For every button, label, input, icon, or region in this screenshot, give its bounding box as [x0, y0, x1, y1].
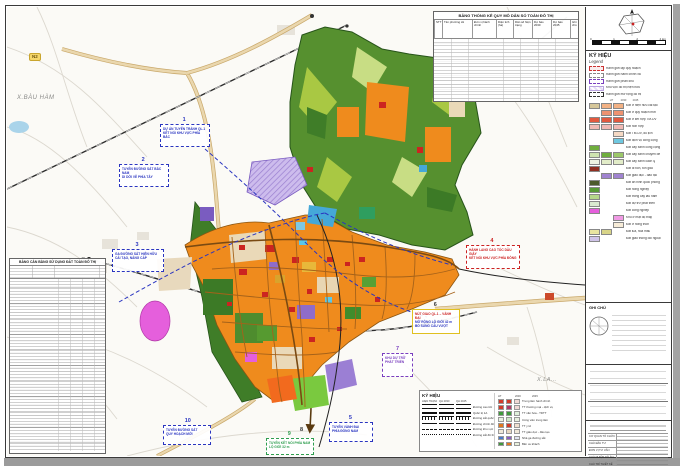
legend-label: Đất ở hiện hữu cải tạo: [626, 104, 658, 107]
line-sample: [456, 412, 471, 414]
landuse-swatch: [613, 222, 624, 228]
legend-swatches: [589, 103, 624, 109]
title-block-row: CƠ QUAN TỔ CHỨC LẬP QH: [588, 433, 668, 440]
landuse-swatch: [589, 103, 600, 109]
facility-symbol: [514, 399, 520, 404]
legend-swatches: [589, 152, 624, 158]
landuse-swatch: [613, 236, 624, 242]
callout-text: BỔ SUNG CẦU VƯỢT: [415, 324, 457, 328]
legend-boundary-row: Ranh giới mở rộng đô thị: [589, 92, 668, 97]
line-symbol-row: Đường khu vực: [422, 427, 494, 431]
symbol-key-line-headers: HIỆN TRẠNGQH 2030QH 2045: [422, 400, 494, 403]
landuse-swatch: [601, 208, 612, 214]
lake: [9, 121, 29, 133]
legend-label: Đất cây xanh chuyên đề: [626, 153, 660, 156]
landuse-swatch: [601, 166, 612, 172]
landuse-swatch: [589, 159, 600, 165]
line-symbol-row: Đường chính đô thị: [422, 422, 494, 426]
line-sample: [422, 434, 437, 435]
legend-swatches: [589, 124, 624, 130]
title-block-row: CHỦ TRÌ THIẾT KẾ: [588, 461, 668, 466]
notes-text-lines: [612, 313, 666, 353]
line-sample: [439, 404, 454, 409]
callout-number: 6: [434, 302, 437, 309]
line-column-header: QH 2045: [456, 400, 471, 403]
line-symbol-label: Đường cao tốc: [473, 405, 494, 409]
legend-label: Đất công nghiệp: [626, 209, 649, 212]
divider: [588, 401, 668, 402]
facility-symbol: [506, 417, 512, 422]
landuse-swatch: [613, 138, 624, 144]
legend-label: Ranh giới phân khu: [606, 80, 634, 83]
facility-symbol: [514, 411, 520, 416]
facility-symbol-row: TT y tế: [498, 423, 579, 428]
line-sample: [422, 429, 437, 430]
landuse-swatch: [613, 166, 624, 172]
callout-number: 7: [396, 346, 399, 353]
legend-panel: KÝ HIỆU Legend Ranh giới lập quy hoạchRa…: [586, 51, 671, 303]
landuse-swatch: [601, 222, 612, 228]
line-sample: [439, 434, 454, 435]
legend-label: Đất dịch vụ công cộng: [626, 139, 658, 142]
commune-label-se: X.LA…: [537, 377, 557, 383]
line-symbol-row: Quốc lộ 1A: [422, 411, 494, 415]
sheet-sidebar: 0124 km KÝ HIỆU Legend Ranh giới lập quy…: [585, 7, 671, 456]
facility-symbol-row: Nhà ga đường sắt: [498, 436, 579, 441]
stats-column-header: Dự báo 2030: [532, 20, 551, 39]
legend-swatches: [589, 194, 624, 200]
landuse-swatch: [589, 194, 600, 200]
scale-bar: [592, 40, 666, 45]
landuse-swatch: [589, 145, 600, 151]
legend-boundary-row: Ranh giới lập quy hoạch: [589, 66, 668, 71]
facility-symbol: [506, 442, 512, 447]
drawing-sheet: X.BÀU HÀM N2 Ga X.LA… 1DỰ ÁN TUYẾN TRÁNH…: [5, 5, 672, 458]
line-sample: [422, 412, 437, 414]
landuse-swatch: [589, 110, 600, 116]
legend-label: Đất ở kết hợp TM-DV: [626, 118, 657, 121]
legend-swatches: [589, 187, 624, 193]
line-symbol-row: Đường sắt đô thị: [422, 433, 494, 437]
landuse-swatch: [589, 138, 600, 144]
road-symbol-key: KÝ HIỆU HIỆN TRẠNGQH 2030QH 2045 Đường c…: [419, 390, 582, 452]
title-block-label: CƠ QUAN TỔ CHỨC LẬP QH: [588, 434, 617, 440]
boundary-swatch: [589, 86, 604, 91]
landuse-swatch: [589, 131, 600, 137]
facility-symbol-label: Bến xe khách: [522, 442, 579, 446]
legend-item-row: Đất công nghiệp: [589, 208, 668, 214]
landuse-swatch: [601, 117, 612, 123]
legend-label: Đất cây xanh công cộng: [626, 146, 660, 149]
landuse-swatch: [589, 222, 600, 228]
landuse-swatch: [601, 138, 612, 144]
facility-symbol: [498, 442, 504, 447]
legend-swatches: [589, 222, 624, 228]
legend-column-headers: HT20302045: [606, 99, 668, 102]
legend-boundary-row: Ranh giới hành chính xã: [589, 73, 668, 78]
legend-swatches: [589, 117, 624, 123]
line-sample: [439, 416, 454, 420]
landuse-swatch: [613, 173, 624, 179]
legend-swatches: [589, 229, 624, 235]
line-symbol-label: Đường chính đô thị: [473, 422, 494, 426]
line-sample: [456, 416, 471, 420]
title-block-value: [617, 448, 668, 454]
legend-item-row: Đất giao thông đối ngoại: [589, 236, 668, 242]
landuse-swatch: [601, 145, 612, 151]
approval-text-lines: [590, 368, 666, 418]
facility-symbol-label: TT y tế: [522, 424, 579, 428]
legend-swatches: [589, 159, 624, 165]
landuse-swatch: [601, 110, 612, 116]
legend-swatches: [589, 110, 624, 116]
legend-label: Đất giáo dục - đào tạo: [626, 174, 657, 177]
landuse-swatch: [613, 110, 624, 116]
landuse-swatch: [589, 201, 600, 207]
landuse-swatch: [613, 117, 624, 123]
location-scale-box: 0124 km: [586, 7, 671, 51]
callout-text: KẾT NỐI KHU VỰC PHÍA ĐÔNG: [469, 256, 517, 260]
legend-item-row: Đất cây xanh cách ly: [589, 159, 668, 165]
symbol-column-header: 2045: [532, 395, 547, 398]
legend-item-row: Đất ở quy hoạch mới: [589, 110, 668, 116]
callout-box: 2TUYẾN ĐƯỜNG SẮT BẮC NAMDI DỜI VỀ PHÍA T…: [119, 164, 169, 187]
callout-text: CẢI TẠO, NÂNG CẤP: [115, 256, 161, 260]
page-shadow-bottom: [4, 458, 680, 466]
line-symbol-row: Đường cao tốc: [422, 404, 494, 409]
legend-column-header: 2045: [630, 99, 641, 102]
approval-text-block: [586, 365, 671, 421]
legend-item-row: Đất dịch vụ công cộng: [589, 138, 668, 144]
legend-label: Đất hỗn hợp: [626, 125, 644, 128]
facility-symbol-label: Trung tâm hành chính: [522, 399, 579, 403]
landuse-swatch: [589, 229, 600, 235]
legend-label: Đất cây xanh cách ly: [626, 160, 655, 163]
line-sample: [422, 404, 437, 409]
legend-label: Khu ở mật độ thấp: [626, 216, 652, 219]
symbol-key-title: KÝ HIỆU: [422, 393, 494, 398]
facility-symbol-row: TT giáo dục - đào tạo: [498, 429, 579, 434]
stats-column-header: STT: [434, 20, 442, 39]
facility-symbol: [506, 411, 512, 416]
callout-number: 1: [183, 117, 186, 124]
legend-label: Đất nông nghiệp: [626, 188, 649, 191]
legend-item-row: Đất trồng cây lâu năm: [589, 194, 668, 200]
line-sample: [422, 423, 437, 424]
symbol-column-header: HT: [498, 395, 513, 398]
facility-symbol: [498, 411, 504, 416]
callout-text: PHÍA ĐÔNG NAM: [332, 429, 370, 433]
stats-table-header: STTTên phường xãĐơn vị hành chínhDiện tí…: [434, 19, 578, 39]
title-block-value: [617, 441, 668, 447]
line-sample: [439, 412, 454, 414]
legend-item-row: Đất an ninh quốc phòng: [589, 180, 668, 186]
landuse-swatch: [613, 152, 624, 158]
symbol-key-symbol-headers: HT20302045: [498, 395, 579, 398]
landuse-swatch: [589, 117, 600, 123]
line-sample: [439, 423, 454, 424]
line-sample: [422, 416, 437, 420]
legend-column-header: 2030: [618, 99, 629, 102]
legend-label: Đất ở nông thôn: [626, 223, 649, 226]
callout-text: PHÁT TRIỂN: [385, 360, 410, 364]
facility-symbol: [514, 405, 520, 410]
title-block-label: ĐƠN VỊ TƯ VẤN: [588, 448, 617, 454]
landuse-swatch: [601, 201, 612, 207]
legend-subtitle: Legend: [589, 59, 668, 64]
landuse-swatch: [589, 215, 600, 221]
landuse-swatch: [613, 124, 624, 130]
facility-symbol: [498, 405, 504, 410]
legend-item-row: Đất cây xanh chuyên đề: [589, 152, 668, 158]
legend-swatches: [589, 166, 624, 172]
facility-symbol: [498, 429, 504, 434]
landuse-swatch: [601, 194, 612, 200]
stats-column-header: Diện tích (ha): [496, 20, 513, 39]
boundary-swatch: [589, 92, 604, 97]
callout-box: 9TUYẾN KẾT NỐI PHÍA NAMLỘ GIỚI 32 m: [266, 438, 314, 455]
legend-item-row: Khu ở mật độ thấp: [589, 215, 668, 221]
legend-label: Đất trồng cây lâu năm: [626, 195, 657, 198]
callout-text: DI DỜI VỀ PHÍA TÂY: [122, 175, 166, 179]
population-stats-table: BẢNG THỐNG KÊ QUY MÔ DÂN SỐ TOÀN ĐÔ THỊ …: [433, 11, 579, 102]
facility-symbol: [506, 429, 512, 434]
title-block-label: CHỦ TRÌ THIẾT KẾ: [588, 462, 617, 466]
legend-item-row: Đất cây xanh công cộng: [589, 145, 668, 151]
callout-text: KẾT NỐI KHU VỰC PHÍA BẮC: [163, 131, 207, 139]
plan-sheet-page: X.BÀU HÀM N2 Ga X.LA… 1DỰ ÁN TUYẾN TRÁNH…: [0, 0, 680, 466]
landuse-swatch: [601, 173, 612, 179]
title-block-heading: [590, 423, 666, 431]
callout-number: 4: [490, 238, 493, 245]
legend-item-row: Đất ở nông thôn: [589, 222, 668, 228]
landuse-swatch: [613, 131, 624, 137]
facility-symbol: [514, 423, 520, 428]
legend-item-row: Đất lúa, hoa màu: [589, 229, 668, 235]
legend-label: Ranh giới hành chính xã: [606, 73, 641, 76]
landuse-swatch: [601, 187, 612, 193]
landuse-swatch: [613, 145, 624, 151]
legend-item-row: Đất giáo dục - đào tạo: [589, 173, 668, 179]
title-block-value: [617, 434, 668, 440]
landuse-swatch: [601, 180, 612, 186]
legend-swatches: [589, 145, 624, 151]
line-sample: [456, 423, 471, 424]
facility-symbol: [506, 423, 512, 428]
callout-number: 9: [288, 431, 291, 438]
facility-symbol: [506, 436, 512, 441]
callout-box: 3GA ĐƯỜNG SẮT HIỆN HỮUCẢI TẠO, NÂNG CẤP: [112, 249, 164, 272]
legend-item-row: Đất ở kết hợp TM-DV: [589, 117, 668, 123]
legend-label: Khu vực đô thị hiện hữu: [606, 86, 640, 89]
landuse-swatch: [601, 124, 612, 130]
legend-label: Đất dự trữ phát triển: [626, 202, 655, 205]
landuse-swatch: [589, 187, 600, 193]
landuse-swatch: [601, 152, 612, 158]
facility-symbol: [506, 405, 512, 410]
title-block-row: CHỦ ĐẦU TƯ: [588, 440, 668, 447]
legend-boundary-row: Khu vực đô thị hiện hữu: [589, 86, 668, 91]
line-sample: [456, 429, 471, 430]
landuse-swatch: [613, 103, 624, 109]
stats-table-title: BẢNG THỐNG KÊ QUY MÔ DÂN SỐ TOÀN ĐÔ THỊ: [434, 12, 578, 19]
callout-text: QUY HOẠCH MỚI: [166, 432, 208, 436]
legend-landuse-items: Đất ở hiện hữu cải tạoĐất ở quy hoạch mớ…: [589, 103, 668, 242]
landuse-swatch: [601, 229, 612, 235]
legend-boundary-row: Ranh giới phân khu: [589, 79, 668, 84]
line-sample: [456, 434, 471, 435]
landuse-swatch: [613, 194, 624, 200]
legend-swatches: [589, 138, 624, 144]
legend-item-row: Đất ở hiện hữu cải tạo: [589, 103, 668, 109]
facility-symbol: [498, 436, 504, 441]
callout-text: TUYẾN ĐƯỜNG SẮT BẮC NAM: [122, 167, 166, 175]
landuse-table-body: [10, 279, 105, 451]
facility-symbol: [498, 423, 504, 428]
legend-item-row: Đất TM-DV, du lịch: [589, 131, 668, 137]
facility-symbol: [514, 429, 520, 434]
landuse-swatch: [601, 103, 612, 109]
landuse-swatch: [589, 166, 600, 172]
landuse-swatch: [601, 131, 612, 137]
legend-label: Ranh giới mở rộng đô thị: [606, 93, 641, 96]
callout-number: 2: [142, 157, 145, 164]
facility-symbol: [506, 399, 512, 404]
stats-column-header: Đơn vị hành chính: [472, 20, 496, 39]
legend-label: Đất ở quy hoạch mới: [626, 111, 656, 114]
page-shadow-right: [673, 4, 680, 466]
legend-swatches: [589, 215, 624, 221]
landuse-swatch: [613, 159, 624, 165]
map-number: 8: [300, 427, 303, 433]
landuse-swatch: [601, 215, 612, 221]
callout-box: 7KHU DỰ TRỮPHÁT TRIỂN: [382, 353, 413, 377]
landuse-swatch: [613, 229, 624, 235]
legend-label: Đất giao thông đối ngoại: [626, 237, 661, 240]
route-shield-n2: N2: [29, 53, 41, 61]
landuse-swatch: [589, 180, 600, 186]
legend-label: Đất TM-DV, du lịch: [626, 132, 653, 135]
legend-swatches: [589, 131, 624, 137]
landuse-swatch: [613, 180, 624, 186]
boundary-swatch: [589, 66, 604, 71]
legend-item-row: Đất hỗn hợp: [589, 124, 668, 130]
callout-box: 1DỰ ÁN TUYẾN TRÁNH QL.1KẾT NỐI KHU VỰC P…: [160, 124, 210, 147]
line-symbol-label: Đường sắt quốc gia: [473, 416, 494, 420]
landuse-swatch: [601, 159, 612, 165]
facility-symbol-label: Nhà ga đường sắt: [522, 436, 579, 440]
boundary-swatch: [589, 79, 604, 84]
title-block: CƠ QUAN TỔ CHỨC LẬP QHCHỦ ĐẦU TƯĐƠN VỊ T…: [586, 421, 671, 466]
landuse-swatch: [613, 215, 624, 221]
facility-symbol-row: TT văn hóa - TDTT: [498, 411, 579, 416]
callout-box: 5TUYẾN VÀNH ĐAIPHÍA ĐÔNG NAM: [329, 422, 373, 442]
legend-label: Ranh giới lập quy hoạch: [606, 67, 641, 70]
commune-label-nw: X.BÀU HÀM: [17, 95, 55, 101]
facility-symbol: [514, 417, 520, 422]
facility-symbol-label: Công viên trung tâm: [522, 418, 579, 422]
legend-swatches: [589, 180, 624, 186]
landuse-balance-table: BẢNG CÂN BẰNG SỬ DỤNG ĐẤT TOÀN ĐÔ THỊ: [9, 258, 106, 454]
stats-column-header: Tên phường xã: [442, 20, 472, 39]
callout-text: HÀNH LANG CAO TỐC DẦU GIÂY: [469, 248, 517, 256]
line-column-header: HIỆN TRẠNG: [422, 400, 437, 403]
notes-title: GHI CHÚ: [589, 305, 668, 310]
callout-box: 4HÀNH LANG CAO TỐC DẦU GIÂYKẾT NỐI KHU V…: [466, 245, 520, 269]
legend-column-header: HT: [606, 99, 617, 102]
facility-symbol-row: Trung tâm hành chính: [498, 399, 579, 404]
landuse-swatch: [589, 173, 600, 179]
facility-symbol: [514, 436, 520, 441]
callout-text: NÚT GIAO QL.1 – VÀNH ĐAI: [415, 312, 457, 320]
landuse-swatch: [589, 236, 600, 242]
line-sample: [439, 429, 454, 430]
callout-number: 3: [136, 242, 139, 249]
line-symbol-label: Đường sắt đô thị: [473, 433, 494, 437]
title-block-rows: CƠ QUAN TỔ CHỨC LẬP QHCHỦ ĐẦU TƯĐƠN VỊ T…: [588, 433, 668, 466]
stats-column-header: Dân số hiện trạng: [513, 20, 532, 39]
map-canvas: X.BÀU HÀM N2 Ga X.LA… 1DỰ ÁN TUYẾN TRÁNH…: [7, 7, 585, 456]
title-block-value: [617, 462, 668, 466]
legend-swatches: [589, 208, 624, 214]
zone-circle-diagram: [588, 315, 610, 337]
stats-table-body: [434, 39, 578, 101]
callout-box: 6NÚT GIAO QL.1 – VÀNH ĐAIMỞ RỘNG LỘ GIỚI…: [412, 309, 460, 334]
symbol-column-header: 2030: [515, 395, 530, 398]
symbol-key-symbols: HT20302045 Trung tâm hành chínhTT thương…: [494, 393, 579, 449]
line-column-header: QH 2030: [439, 400, 454, 403]
landuse-swatch: [613, 208, 624, 214]
landuse-swatch: [613, 187, 624, 193]
line-sample: [456, 404, 471, 409]
title-block-label: CHỦ NHIỆM ĐỒ ÁN: [588, 455, 617, 461]
legend-item-row: Đất nông nghiệp: [589, 187, 668, 193]
boundary-swatch: [589, 73, 604, 78]
landuse-swatch: [589, 208, 600, 214]
legend-boundary-items: Ranh giới lập quy hoạchRanh giới hành ch…: [589, 66, 668, 97]
title-block-row: CHỦ NHIỆM ĐỒ ÁN: [588, 454, 668, 461]
landuse-swatch: [589, 152, 600, 158]
facility-symbol-label: TT văn hóa - TDTT: [522, 411, 579, 415]
stats-column-header: Dự báo 2045: [551, 20, 570, 39]
facility-symbol-row: Công viên trung tâm: [498, 417, 579, 422]
line-symbol-label: Đường khu vực: [473, 427, 494, 431]
legend-swatches: [589, 201, 624, 207]
landuse-table-title: BẢNG CÂN BẰNG SỬ DỤNG ĐẤT TOÀN ĐÔ THỊ: [10, 259, 105, 266]
legend-label: Đất lúa, hoa màu: [626, 230, 650, 233]
legend-swatches: [589, 173, 624, 179]
divider: [588, 383, 668, 384]
facility-symbol-label: TT thương mại - dịch vụ: [522, 405, 579, 409]
stats-column-header: Ghi chú: [570, 20, 578, 39]
legend-swatches: [589, 236, 624, 242]
legend-label: Đất di tích, tôn giáo: [626, 167, 653, 170]
facility-symbol: [514, 442, 520, 447]
legend-item-row: Đất dự trữ phát triển: [589, 201, 668, 207]
callout-text: LỘ GIỚI 32 m: [269, 445, 311, 449]
title-block-label: CHỦ ĐẦU TƯ: [588, 441, 617, 447]
title-block-value: [617, 455, 668, 461]
facility-symbol: [498, 417, 504, 422]
title-block-row: ĐƠN VỊ TƯ VẤN: [588, 447, 668, 454]
notes-panel: GHI CHÚ: [586, 303, 671, 365]
facility-symbol: [498, 399, 504, 404]
legend-label: Đất an ninh quốc phòng: [626, 181, 660, 184]
line-symbol-label: Quốc lộ 1A: [473, 411, 494, 415]
facility-symbol-label: TT giáo dục - đào tạo: [522, 430, 579, 434]
facility-symbol-row: TT thương mại - dịch vụ: [498, 405, 579, 410]
symbol-key-lines: KÝ HIỆU HIỆN TRẠNGQH 2030QH 2045 Đường c…: [422, 393, 494, 449]
